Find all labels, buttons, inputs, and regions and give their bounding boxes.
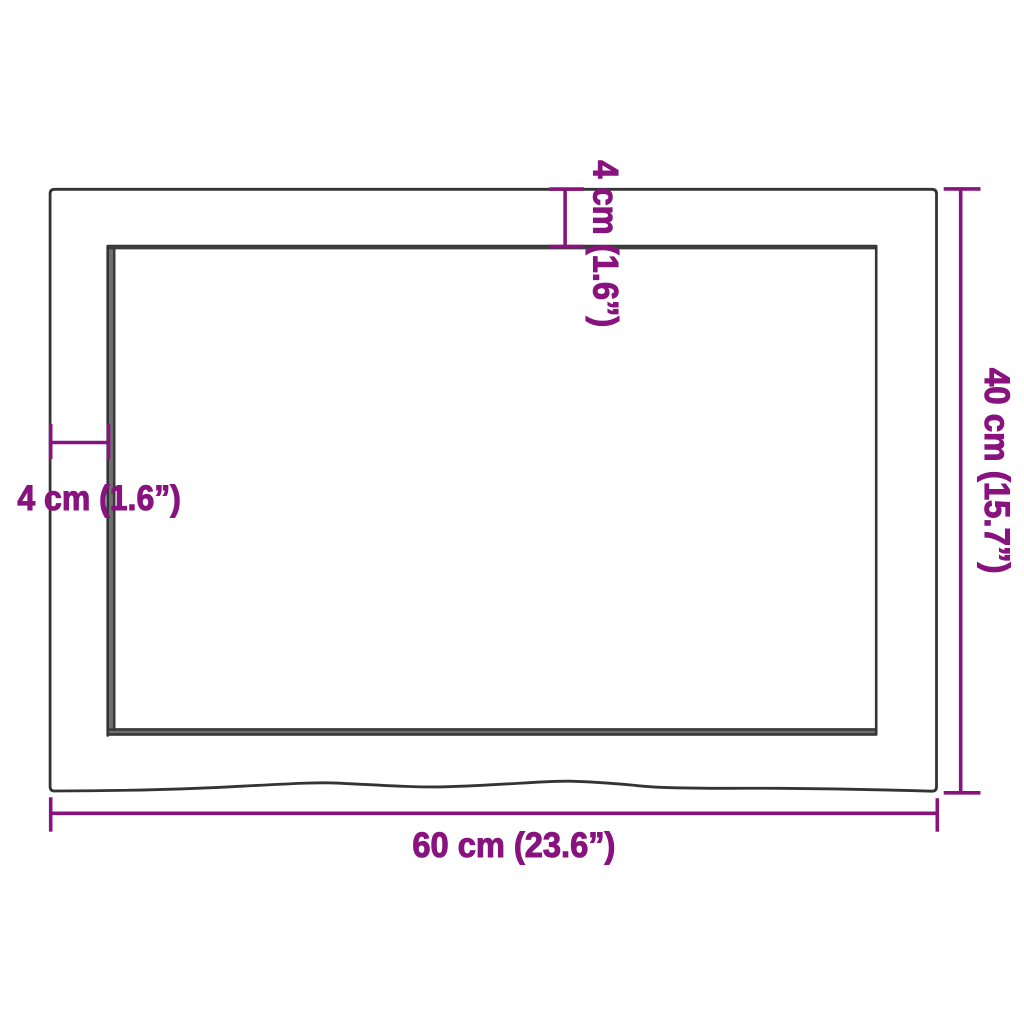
svg-text:40 cm (15.7”): 40 cm (15.7”) (977, 368, 1016, 574)
svg-text:4 cm (1.6”): 4 cm (1.6”) (17, 478, 180, 518)
svg-text:4 cm (1.6”): 4 cm (1.6”) (585, 160, 625, 327)
svg-text:60 cm (23.6”): 60 cm (23.6”) (412, 826, 615, 866)
